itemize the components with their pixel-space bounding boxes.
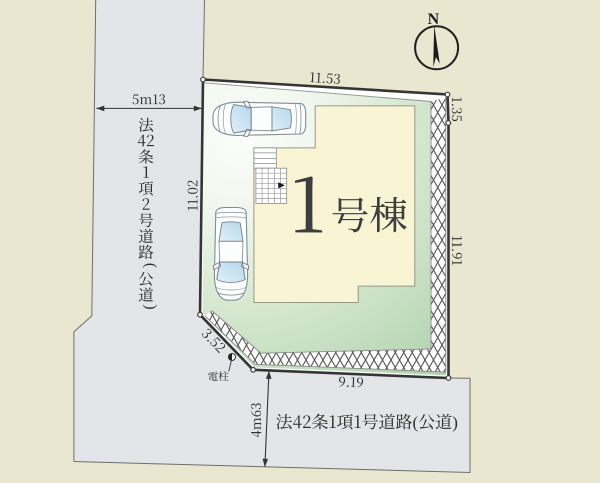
svg-text:): ) bbox=[142, 304, 159, 309]
svg-text:(: ( bbox=[413, 413, 419, 432]
svg-text:): ) bbox=[452, 413, 458, 432]
svg-text:(: ( bbox=[142, 263, 159, 268]
svg-text:N: N bbox=[428, 11, 440, 28]
